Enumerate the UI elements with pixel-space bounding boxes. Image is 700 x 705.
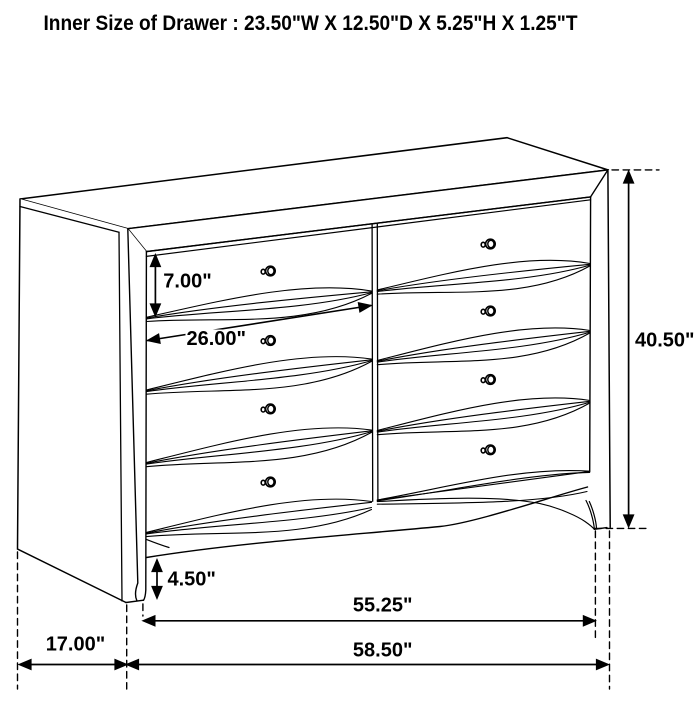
svg-text:26.00": 26.00"	[187, 328, 247, 350]
svg-text:Inner Size of Drawer : 23.50"W: Inner Size of Drawer : 23.50"W X 12.50"D…	[44, 12, 578, 35]
svg-text:40.50": 40.50"	[635, 329, 695, 351]
svg-text:7.00": 7.00"	[163, 271, 211, 293]
svg-text:4.50": 4.50"	[168, 569, 216, 591]
svg-text:58.50": 58.50"	[353, 640, 413, 662]
svg-text:17.00": 17.00"	[46, 634, 106, 656]
svg-text:55.25": 55.25"	[353, 594, 413, 616]
